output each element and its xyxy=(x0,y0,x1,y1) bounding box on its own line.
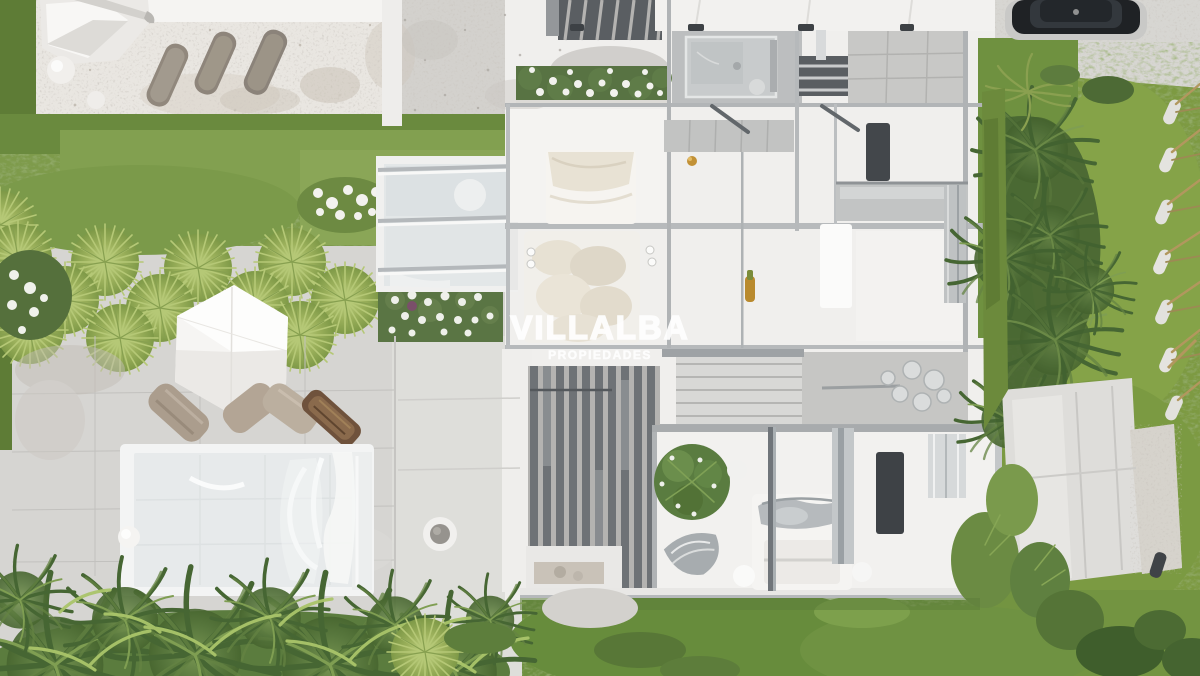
svg-text:PROPIEDADES: PROPIEDADES xyxy=(548,348,652,362)
svg-text:VILLALBA: VILLALBA xyxy=(510,309,689,346)
